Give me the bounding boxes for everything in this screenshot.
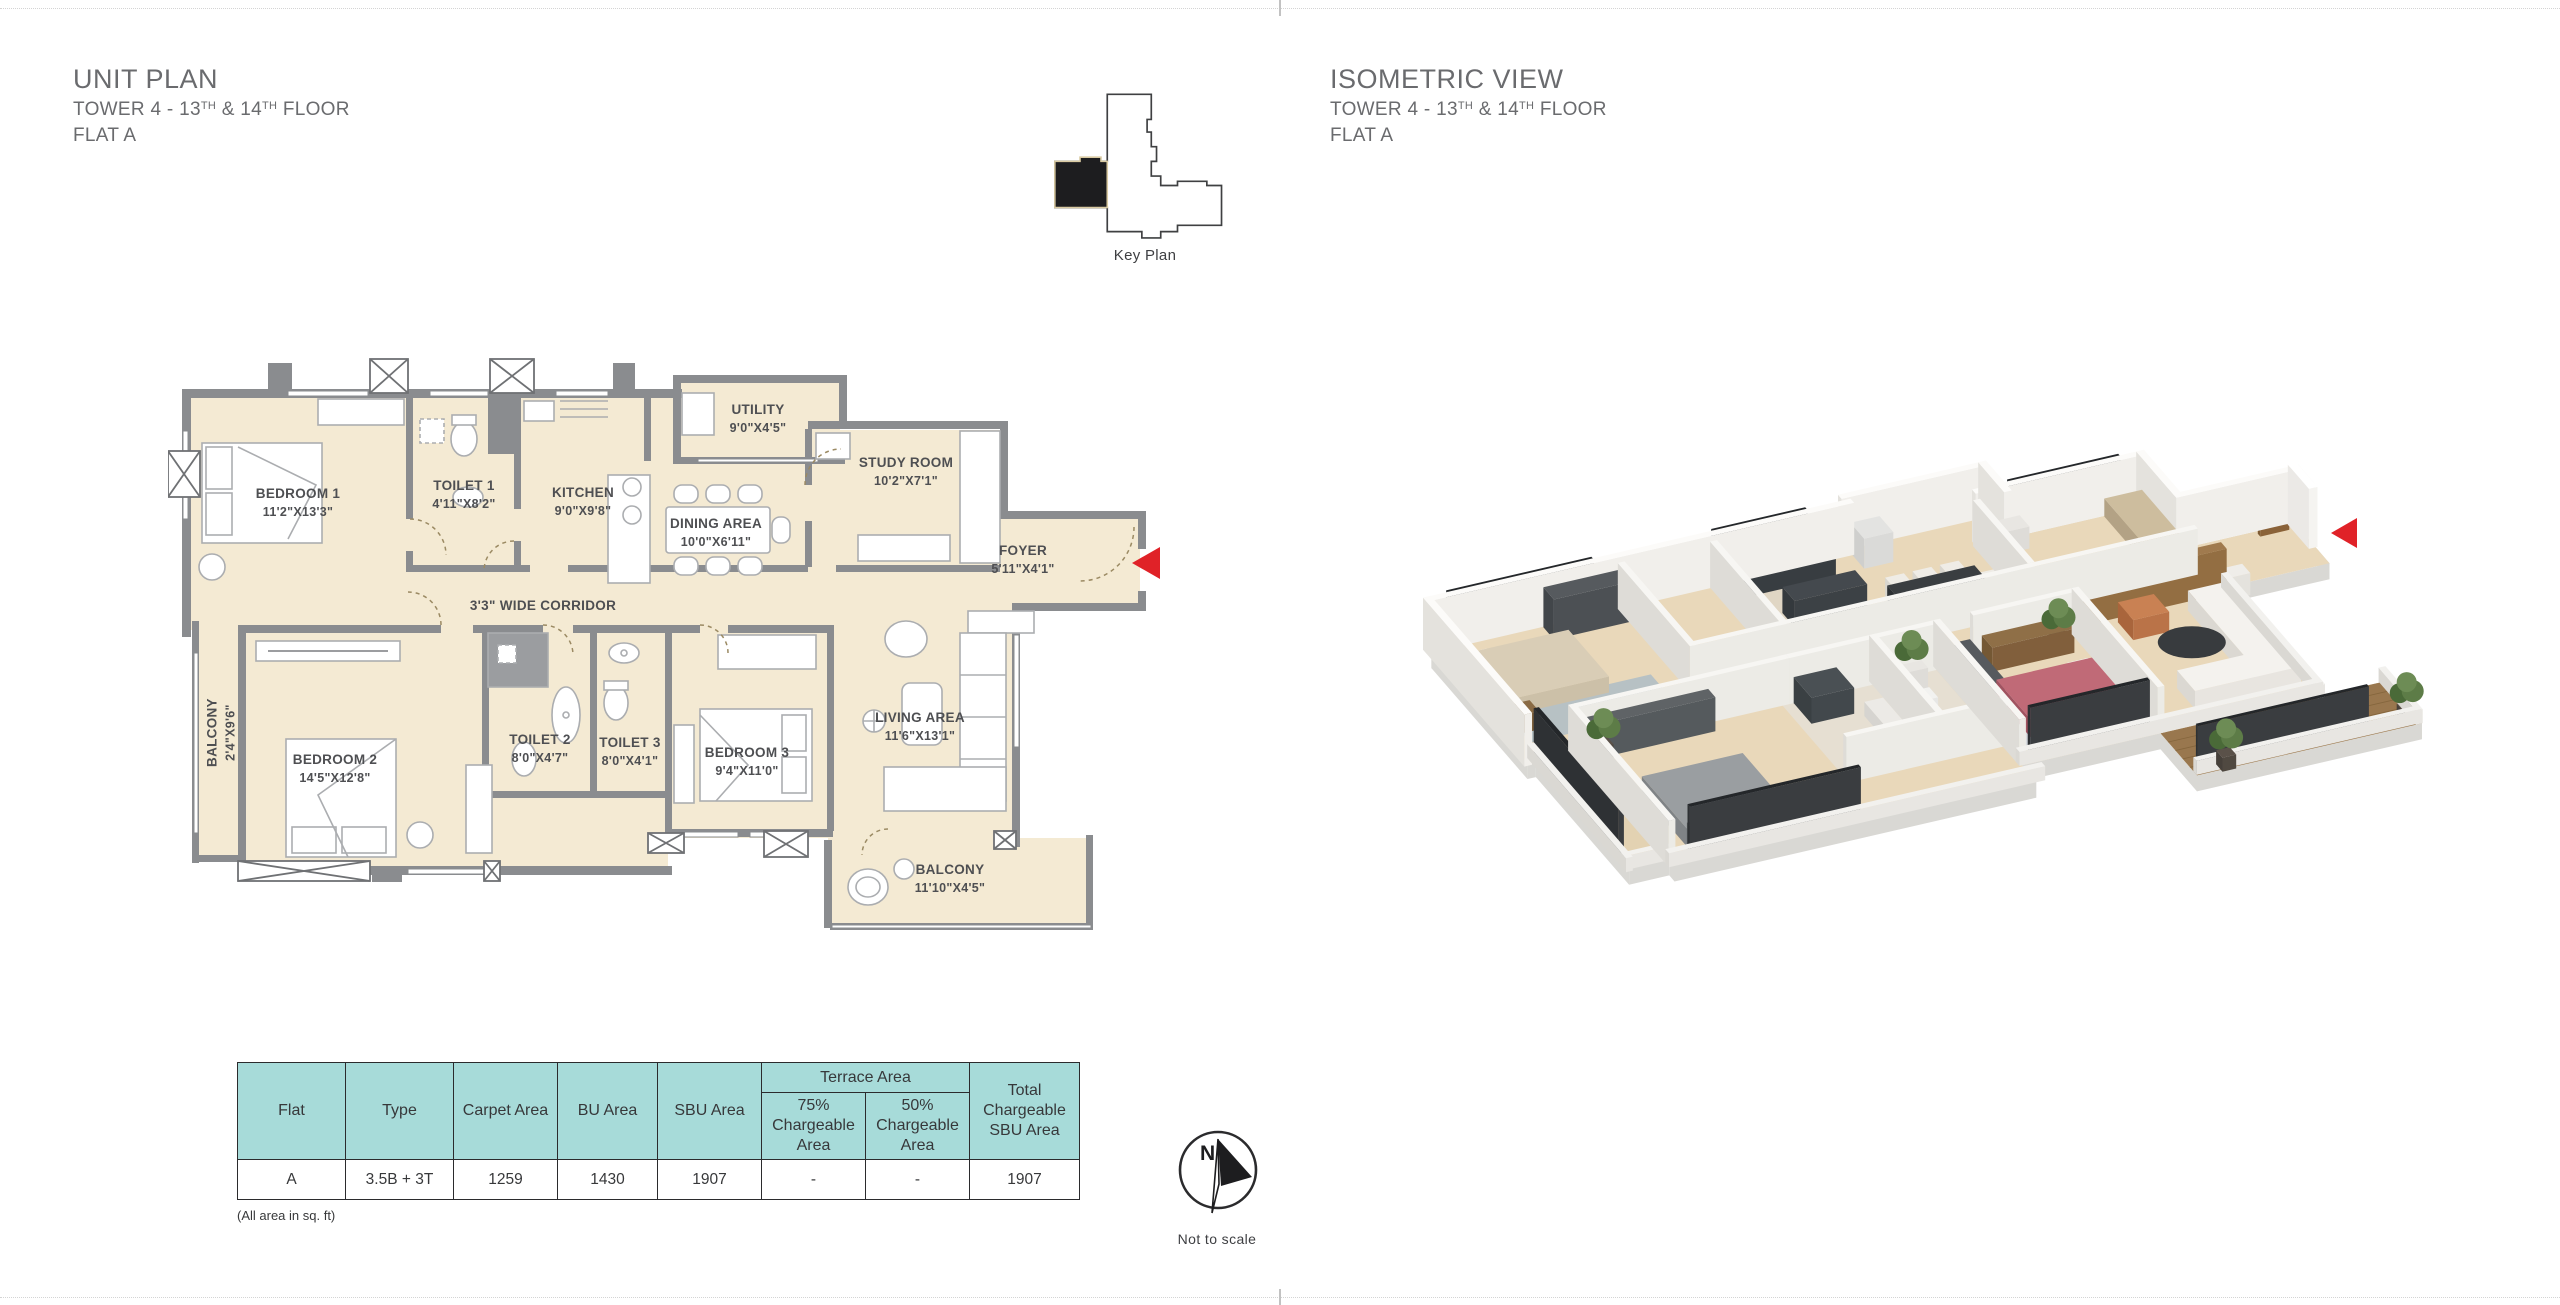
room-label-utility: UTILITY9'0"X4'5" xyxy=(698,401,818,436)
col-terrace-75: 75% Chargeable Area xyxy=(762,1093,866,1160)
table-footnote: (All area in sq. ft) xyxy=(237,1208,1082,1223)
cell-bu: 1430 xyxy=(558,1160,658,1200)
key-plan: Key Plan xyxy=(1040,88,1250,264)
room-label-toilet-2: TOILET 28'0"X4'7" xyxy=(490,731,590,766)
iso-entry-arrow-icon xyxy=(2331,518,2357,548)
key-plan-label: Key Plan xyxy=(1040,247,1250,264)
room-label-toilet-1: TOILET 14'11"X8'2" xyxy=(409,477,519,512)
room-label-balcony-left: BALCONY2'4"X9'6" xyxy=(203,688,238,778)
unit-plan-drawing: BEDROOM 111'2"X13'3" TOILET 14'11"X8'2" … xyxy=(168,335,1168,950)
room-label-study-room: STUDY ROOM10'2"X7'1" xyxy=(846,454,966,489)
room-label-corridor: 3'3" WIDE CORRIDOR xyxy=(443,597,643,615)
room-label-dining-area: DINING AREA10'0"X6'11" xyxy=(656,515,776,550)
room-label-balcony-bottom: BALCONY11'10"X4'5" xyxy=(890,861,1010,896)
isometric-svg xyxy=(1345,390,2485,970)
unit-plan-title: UNIT PLAN xyxy=(73,64,350,95)
unit-plan-flat: FLAT A xyxy=(73,125,350,147)
isometric-rendering xyxy=(1345,390,2485,970)
col-sbu: SBU Area xyxy=(658,1063,762,1160)
compass-n-label: N xyxy=(1200,1142,1215,1165)
cell-flat: A xyxy=(238,1160,346,1200)
room-label-bedroom-1: BEDROOM 111'2"X13'3" xyxy=(228,485,368,520)
room-label-bedroom-3: BEDROOM 39'4"X11'0" xyxy=(687,744,807,779)
compass-icon: N xyxy=(1162,1120,1272,1224)
top-center-tick xyxy=(1279,0,1281,16)
iso-header: ISOMETRIC VIEW TOWER 4 - 13TH & 14TH FLO… xyxy=(1330,64,1607,147)
area-table-section: Flat Type Carpet Area BU Area SBU Area T… xyxy=(237,1062,1082,1223)
key-plan-flat-a-highlight xyxy=(1055,157,1107,207)
col-terrace-50: 50% Chargeable Area xyxy=(866,1093,970,1160)
cell-carpet: 1259 xyxy=(454,1160,558,1200)
col-terrace-group: Terrace Area xyxy=(762,1063,970,1093)
cell-total: 1907 xyxy=(970,1160,1080,1200)
iso-title: ISOMETRIC VIEW xyxy=(1330,64,1607,95)
room-label-bedroom-2: BEDROOM 214'5"X12'8" xyxy=(265,751,405,786)
cell-type: 3.5B + 3T xyxy=(346,1160,454,1200)
table-row: A 3.5B + 3T 1259 1430 1907 - - 1907 xyxy=(238,1160,1080,1200)
room-label-living-area: LIVING AREA11'6"X13'1" xyxy=(860,709,980,744)
unit-plan-svg xyxy=(168,335,1168,950)
bottom-center-tick xyxy=(1279,1289,1281,1305)
brochure-page: { "unit_panel": { "title": "UNIT PLAN", … xyxy=(0,0,2560,1305)
iso-flat: FLAT A xyxy=(1330,125,1607,147)
area-table: Flat Type Carpet Area BU Area SBU Area T… xyxy=(237,1062,1080,1200)
unit-plan-subtitle: TOWER 4 - 13TH & 14TH FLOOR xyxy=(73,99,350,121)
room-label-toilet-3: TOILET 38'0"X4'1" xyxy=(580,734,680,769)
key-plan-drawing xyxy=(1040,88,1250,240)
room-label-kitchen: KITCHEN9'0"X9'8" xyxy=(523,484,643,519)
not-to-scale-label: Not to scale xyxy=(1152,1231,1282,1247)
col-bu: BU Area xyxy=(558,1063,658,1160)
cell-t75: - xyxy=(762,1160,866,1200)
cell-sbu: 1907 xyxy=(658,1160,762,1200)
iso-subtitle: TOWER 4 - 13TH & 14TH FLOOR xyxy=(1330,99,1607,121)
col-type: Type xyxy=(346,1063,454,1160)
col-carpet: Carpet Area xyxy=(454,1063,558,1160)
col-flat: Flat xyxy=(238,1063,346,1160)
col-total: Total Chargeable SBU Area xyxy=(970,1063,1080,1160)
compass: N Not to scale xyxy=(1152,1120,1282,1247)
room-label-foyer: FOYER5'11"X4'1" xyxy=(963,542,1083,577)
cell-t50: - xyxy=(866,1160,970,1200)
unit-plan-header: UNIT PLAN TOWER 4 - 13TH & 14TH FLOOR FL… xyxy=(73,64,350,147)
